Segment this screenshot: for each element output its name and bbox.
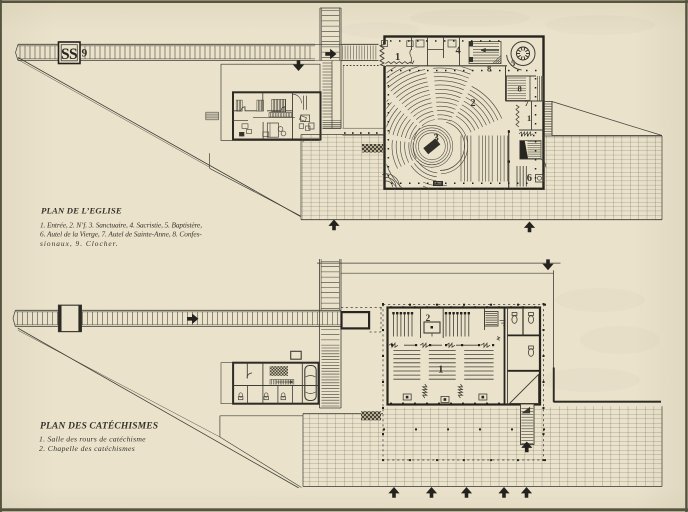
svg-text:8: 8 xyxy=(487,64,491,74)
svg-text:2: 2 xyxy=(471,98,476,109)
svg-text:6. Autel de la Vierge, 7. Aute: 6. Autel de la Vierge, 7. Autel de Saint… xyxy=(40,230,202,239)
svg-text:PLAN DE L’EGLISE: PLAN DE L’EGLISE xyxy=(41,206,122,216)
svg-text:8: 8 xyxy=(518,84,522,94)
svg-text:SS: SS xyxy=(61,46,77,63)
svg-text:2. Chapelle des catéchismes: 2. Chapelle des catéchismes xyxy=(39,444,135,453)
svg-text:2: 2 xyxy=(426,314,431,324)
svg-text:5: 5 xyxy=(511,58,515,68)
svg-text:sionaux, 9. Clocher.: sionaux, 9. Clocher. xyxy=(40,239,119,248)
svg-text:3: 3 xyxy=(434,133,439,144)
svg-text:1. Salle des rours de catéchi: 1. Salle des rours de catéchisme xyxy=(39,435,146,444)
svg-text:9: 9 xyxy=(82,48,88,60)
svg-text:4: 4 xyxy=(456,46,462,57)
svg-text:1: 1 xyxy=(395,52,400,63)
svg-text:PLAN DES CATÉCHISMES: PLAN DES CATÉCHISMES xyxy=(40,420,158,432)
svg-text:1: 1 xyxy=(527,113,531,123)
svg-text:1: 1 xyxy=(438,364,444,376)
svg-text:1. Entrée, 2. N’f. 3. Sanctuai: 1. Entrée, 2. N’f. 3. Sanctuaire, 4. Sac… xyxy=(40,220,202,229)
svg-text:6: 6 xyxy=(527,173,532,184)
